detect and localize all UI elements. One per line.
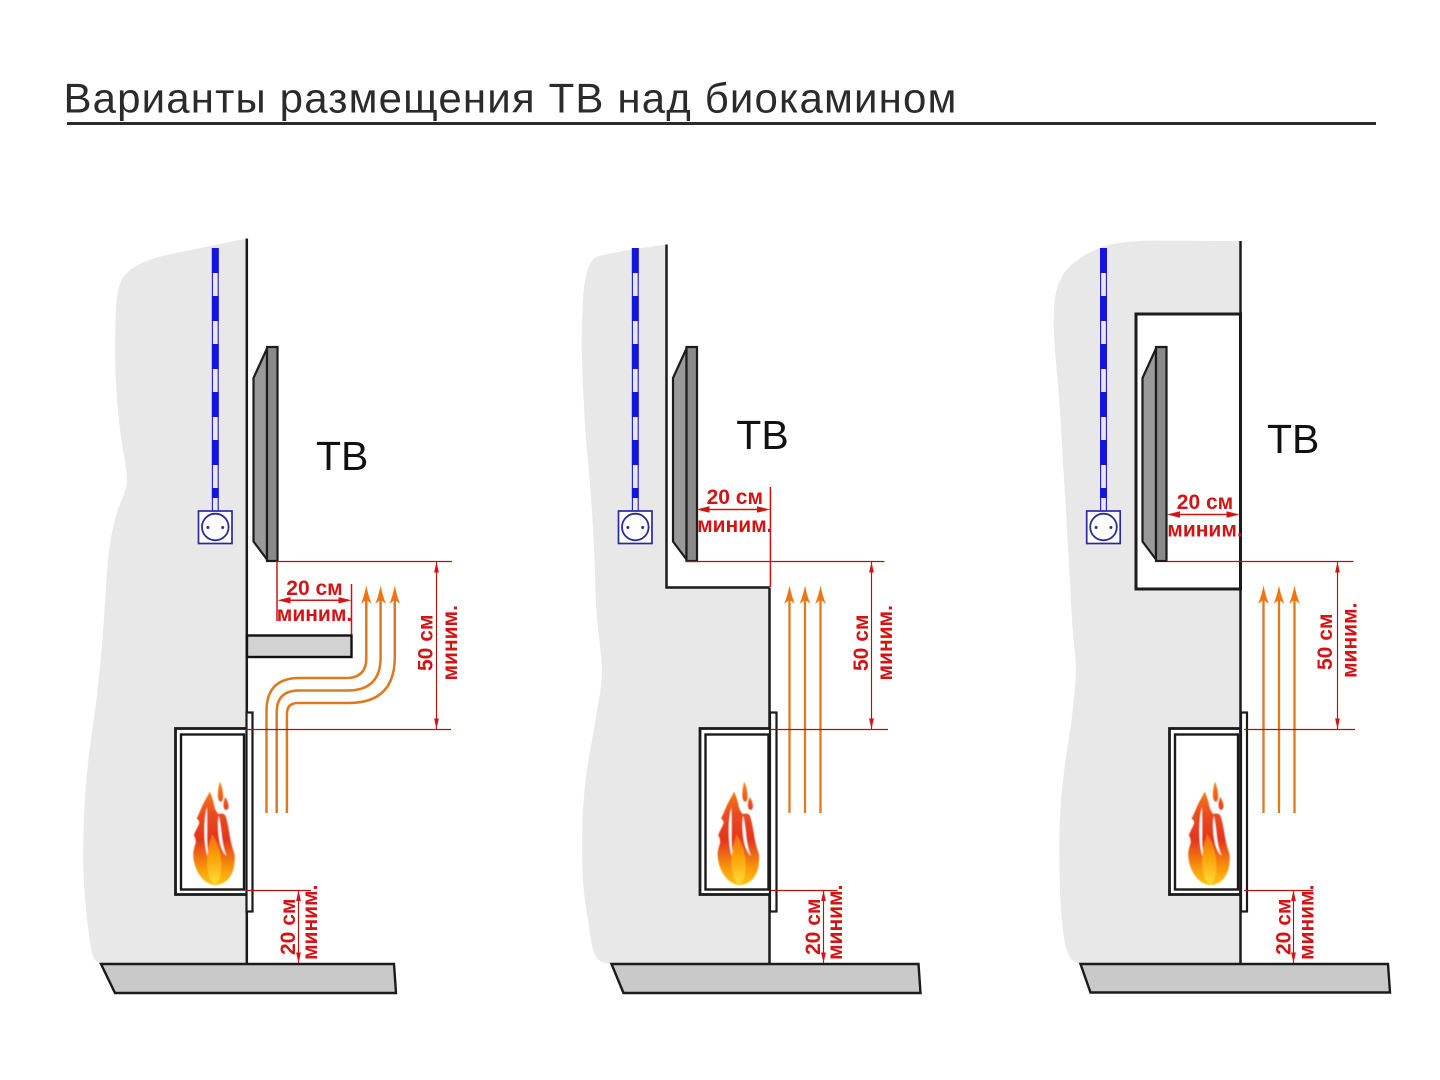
svg-text:ТВ: ТВ <box>316 433 368 479</box>
svg-text:50 см: 50 см <box>850 615 873 671</box>
svg-text:миним.: миним. <box>1167 519 1242 542</box>
svg-text:20 см: 20 см <box>707 486 763 509</box>
svg-text:миним.: миним. <box>299 885 322 960</box>
svg-text:Варианты размещения ТВ над био: Варианты размещения ТВ над биокамином <box>64 75 958 122</box>
svg-text:миним.: миним. <box>1296 885 1319 960</box>
svg-text:50 см: 50 см <box>414 615 437 671</box>
svg-text:миним.: миним. <box>1339 603 1362 678</box>
svg-text:20 см: 20 см <box>286 577 342 600</box>
svg-text:ТВ: ТВ <box>1267 416 1319 462</box>
svg-text:миним.: миним. <box>277 603 352 626</box>
svg-text:20 см: 20 см <box>1273 899 1296 955</box>
svg-text:миним.: миним. <box>439 605 462 680</box>
svg-text:ТВ: ТВ <box>736 412 788 458</box>
svg-text:50 см: 50 см <box>1314 614 1337 670</box>
svg-text:миним.: миним. <box>697 514 772 537</box>
svg-text:20 см: 20 см <box>802 899 825 955</box>
svg-text:20 см: 20 см <box>1177 491 1233 514</box>
svg-text:миним.: миним. <box>824 885 847 960</box>
svg-text:миним.: миним. <box>874 605 897 680</box>
svg-text:20 см: 20 см <box>277 899 300 955</box>
